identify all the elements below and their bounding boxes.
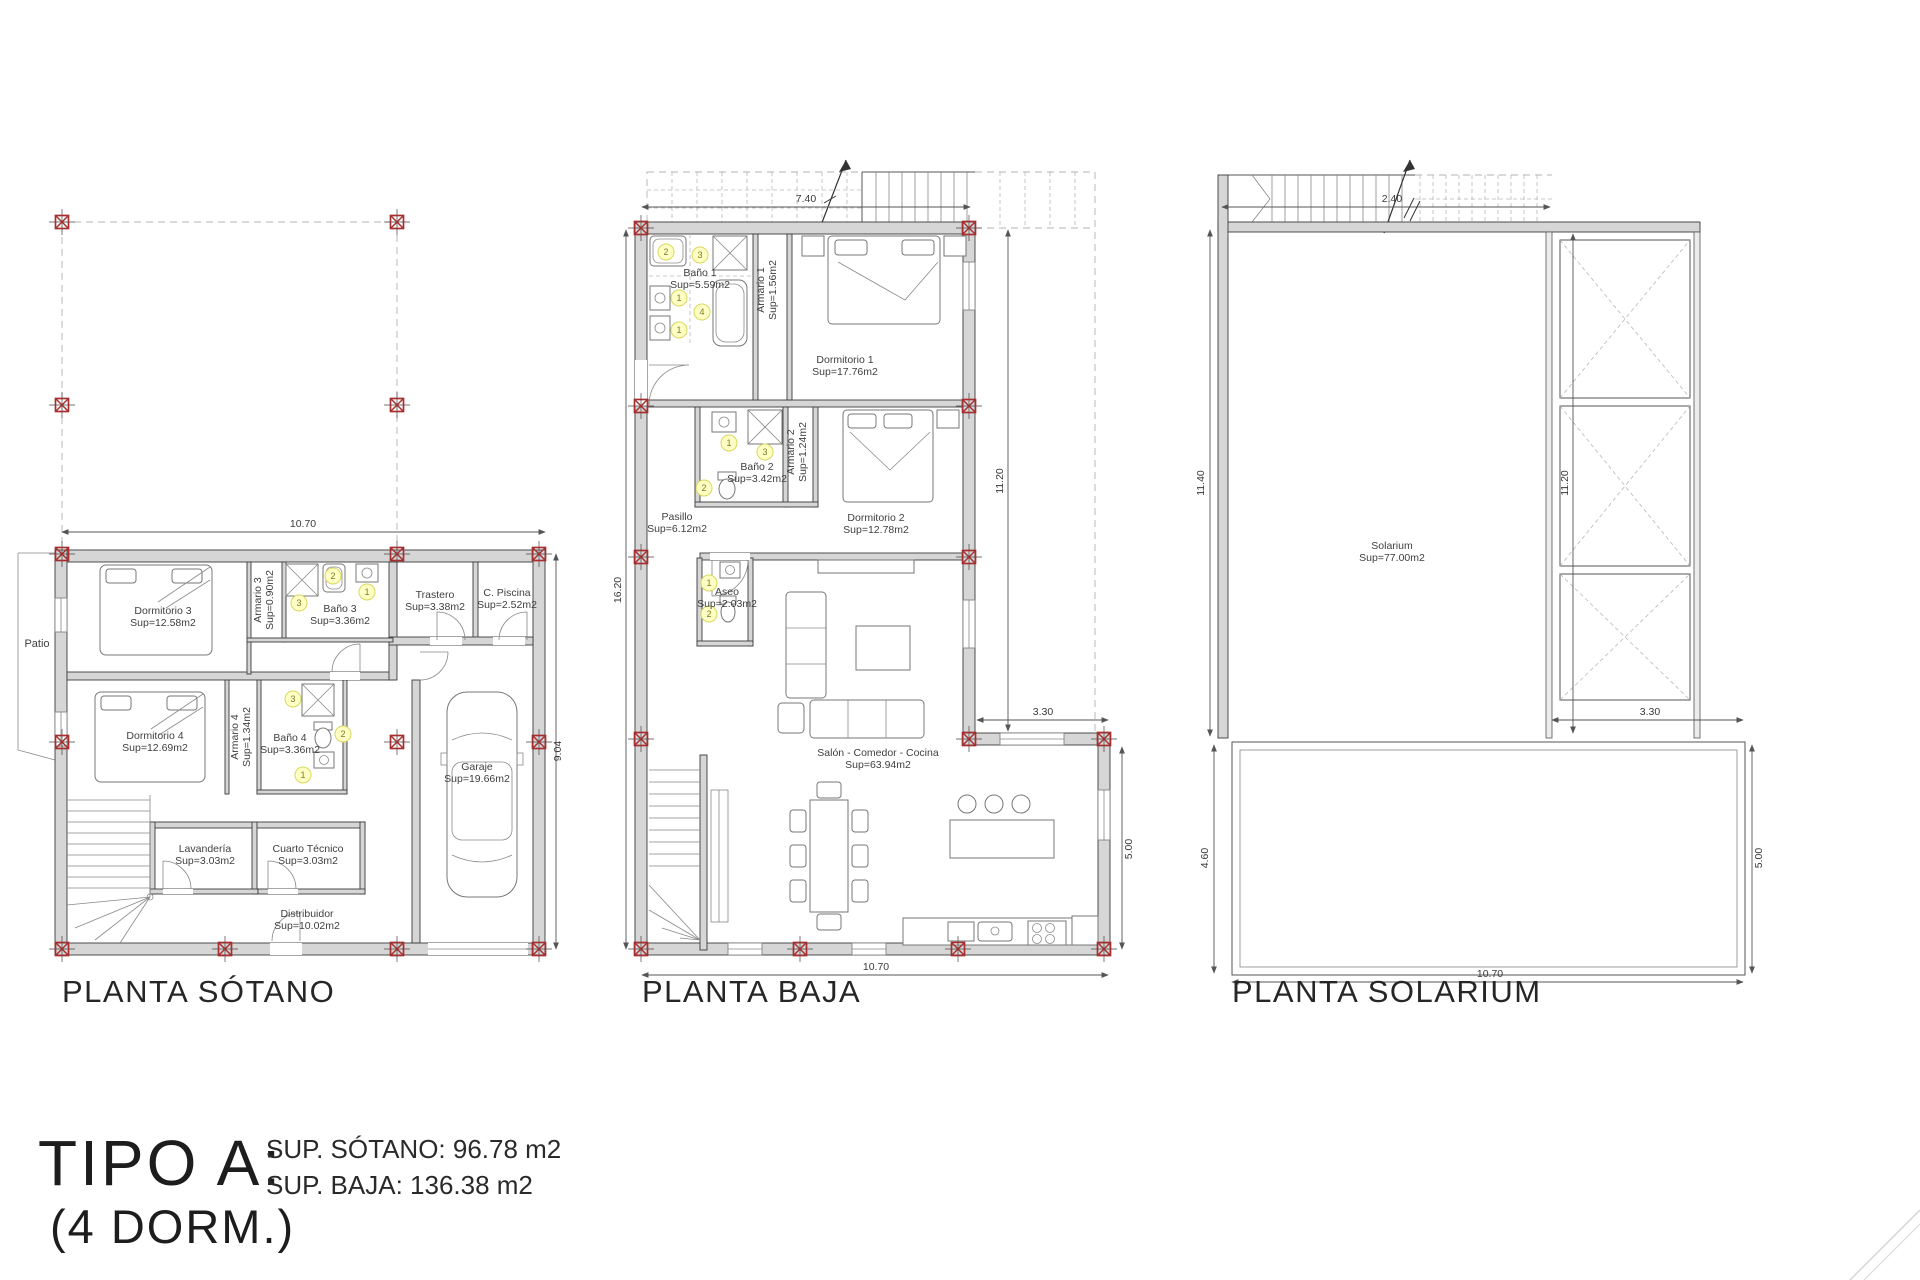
label-armario2: Armario 2 (785, 429, 797, 475)
label-aseo: Aseo (715, 586, 739, 598)
tag: 1 (676, 293, 681, 303)
sup-baja-label: SUP. BAJA: 136.38 m2 (266, 1170, 533, 1200)
dim-solarium-top: 2.40 (1382, 193, 1403, 205)
label-bano1: Baño 1 (683, 267, 716, 279)
sink-icon (712, 412, 736, 432)
tag: 1 (726, 438, 731, 448)
sofa (810, 700, 924, 738)
label-pasillo: Pasillo (662, 511, 693, 523)
chair (852, 845, 868, 867)
label-lavanderia: Lavandería (179, 843, 232, 855)
label-cpiscina-sup: Sup=2.52m2 (477, 599, 537, 611)
tag: 1 (706, 578, 711, 588)
chair (790, 845, 806, 867)
label-bano4: Baño 4 (273, 732, 306, 744)
kitchen-sink-icon (948, 922, 974, 941)
sink-icon (720, 562, 740, 578)
dim-baja-right: 11.20 (994, 468, 1006, 494)
tag: 2 (663, 247, 668, 257)
solarium-room-labels: Solarium Sup=77.00m2 (1359, 540, 1425, 564)
solarium-walls (1218, 175, 1745, 975)
dim-baja-inner: 3.30 (1033, 706, 1054, 718)
label-bano1-sup: Sup=5.59m2 (670, 279, 730, 291)
chair (817, 914, 841, 930)
label-trastero: Trastero (416, 589, 455, 601)
label-solarium: Solarium (1371, 540, 1413, 552)
label-distribuidor: Distribuidor (280, 908, 334, 920)
chair (790, 880, 806, 902)
dim-solarium-right-bottom: 5.00 (1753, 848, 1765, 869)
label-armario4-sup: Sup=1.34m2 (241, 707, 253, 767)
chair (790, 810, 806, 832)
sotano-stairs (67, 795, 153, 943)
sup-sotano-label: SUP. SÓTANO: 96.78 m2 (266, 1134, 561, 1164)
tag: 1 (676, 325, 681, 335)
tag: 1 (300, 770, 305, 780)
label-patio: Patio (24, 638, 49, 650)
label-aseo-sup: Sup=2.03m2 (697, 598, 757, 610)
label-garaje: Garaje (461, 761, 493, 773)
tag: 2 (340, 729, 345, 739)
label-salon-sup: Sup=63.94m2 (845, 759, 911, 771)
dim-baja-left: 16.20 (612, 577, 624, 603)
plan-title-sotano: PLANTA SÓTANO (62, 974, 335, 1009)
coffee-table (856, 626, 910, 670)
tv-bench (818, 560, 914, 573)
terrace-outline (1232, 742, 1745, 975)
label-armario2-sup: Sup=1.24m2 (797, 422, 809, 482)
label-cuarto-tecnico: Cuarto Técnico (272, 843, 343, 855)
dim-solarium-left-bottom: 4.60 (1199, 848, 1211, 869)
stool (985, 795, 1003, 813)
wardrobe (711, 790, 728, 922)
plan-baja: 2 3 1 1 4 1 3 2 1 2 7.40 16.20 11.20 3.3… (612, 160, 1135, 1009)
label-dormitorio3: Dormitorio 3 (134, 605, 191, 617)
sotano-car (441, 692, 523, 897)
sink-icon (356, 564, 378, 582)
sheet-corner-fold (1850, 1210, 1920, 1280)
sofa-chaise (786, 592, 826, 698)
kitchen-island (950, 820, 1054, 858)
label-armario4: Armario 4 (229, 714, 241, 760)
plan-title-baja: PLANTA BAJA (642, 974, 861, 1009)
floor-plan-drawing: 3 2 1 3 2 1 10.70 9.04 Patio Dormitorio … (0, 0, 1920, 1280)
label-bano4-sup: Sup=3.36m2 (260, 744, 320, 756)
dim-solarium-inner: 3.30 (1640, 706, 1661, 718)
tag: 2 (706, 609, 711, 619)
title-block: TIPO A: (4 DORM.) SUP. SÓTANO: 96.78 m2 … (38, 1127, 561, 1253)
label-bano3-sup: Sup=3.36m2 (310, 615, 370, 627)
dim-baja-right-bottom: 5.00 (1123, 839, 1135, 860)
label-armario1: Armario 1 (755, 267, 767, 313)
label-armario3: Armario 3 (252, 577, 264, 623)
baja-stairs (649, 770, 728, 940)
nightstand (802, 236, 824, 256)
floor-plan-sheet: 3 2 1 3 2 1 10.70 9.04 Patio Dormitorio … (0, 0, 1920, 1280)
label-salon: Salón - Comedor - Cocina (817, 747, 939, 759)
tag: 2 (330, 571, 335, 581)
terrace-inner (1240, 750, 1737, 967)
armchair (778, 703, 804, 733)
label-cpiscina: C. Piscina (483, 587, 530, 599)
tag: 3 (296, 598, 301, 608)
label-bano2: Baño 2 (740, 461, 773, 473)
lattice-panel (1560, 574, 1690, 700)
label-dormitorio4-sup: Sup=12.69m2 (122, 742, 188, 754)
label-solarium-sup: Sup=77.00m2 (1359, 552, 1425, 564)
sotano-overhang-dashed (62, 222, 397, 552)
label-cuarto-tecnico-sup: Sup=3.03m2 (278, 855, 338, 867)
tag: 1 (364, 587, 369, 597)
stool (958, 795, 976, 813)
dim-solarium-right: 11.20 (1559, 470, 1571, 496)
dim-baja-bottom: 10.70 (863, 961, 889, 973)
plan-sotano: 3 2 1 3 2 1 10.70 9.04 Patio Dormitorio … (18, 209, 564, 1009)
dorm-count-label: (4 DORM.) (50, 1200, 295, 1253)
chair (852, 810, 868, 832)
sink-icon (650, 286, 670, 310)
dim-solarium-left: 11.40 (1195, 470, 1207, 496)
label-armario1-sup: Sup=1.56m2 (767, 260, 779, 320)
tag: 4 (699, 307, 704, 317)
label-dormitorio4: Dormitorio 4 (126, 730, 183, 742)
sotano-patio-lines (18, 553, 55, 760)
label-lavanderia-sup: Sup=3.03m2 (175, 855, 235, 867)
label-bano2-sup: Sup=3.42m2 (727, 473, 787, 485)
solarium-dimensions: 2.40 11.40 11.20 3.30 4.60 5.00 10.70 (1195, 193, 1765, 982)
dim-sotano-top: 10.70 (290, 518, 316, 530)
label-dormitorio1: Dormitorio 1 (816, 354, 873, 366)
dim-baja-top: 7.40 (796, 193, 817, 205)
label-dormitorio1-sup: Sup=17.76m2 (812, 366, 878, 378)
baja-overhang-dashed (975, 172, 1095, 733)
tag: 3 (290, 694, 295, 704)
chair (852, 880, 868, 902)
dining-table (810, 800, 848, 912)
label-garaje-sup: Sup=19.66m2 (444, 773, 510, 785)
label-distribuidor-sup: Sup=10.02m2 (274, 920, 340, 932)
fridge (1072, 916, 1098, 945)
nightstand (937, 410, 959, 428)
plan-solarium: 2.40 11.40 11.20 3.30 4.60 5.00 10.70 So… (1195, 160, 1765, 1009)
label-bano3: Baño 3 (323, 603, 356, 615)
tag: 3 (697, 250, 702, 260)
plan-title-solarium: PLANTA SOLARIUM (1232, 974, 1542, 1009)
label-dormitorio3-sup: Sup=12.58m2 (130, 617, 196, 629)
tag: 2 (701, 483, 706, 493)
stool (1012, 795, 1030, 813)
baja-bed-dormitorio2 (843, 410, 959, 502)
label-dormitorio2-sup: Sup=12.78m2 (843, 524, 909, 536)
label-dormitorio2: Dormitorio 2 (847, 512, 904, 524)
dim-sotano-right: 9.04 (552, 741, 564, 762)
label-pasillo-sup: Sup=6.12m2 (647, 523, 707, 535)
nightstand (944, 236, 966, 256)
baja-bed-dormitorio1 (802, 236, 966, 324)
sink-icon (650, 316, 670, 340)
label-armario3-sup: Sup=0.90m2 (264, 570, 276, 630)
label-trastero-sup: Sup=3.38m2 (405, 601, 465, 613)
tag: 3 (762, 447, 767, 457)
chair (817, 782, 841, 798)
type-label: TIPO A: (38, 1127, 283, 1199)
